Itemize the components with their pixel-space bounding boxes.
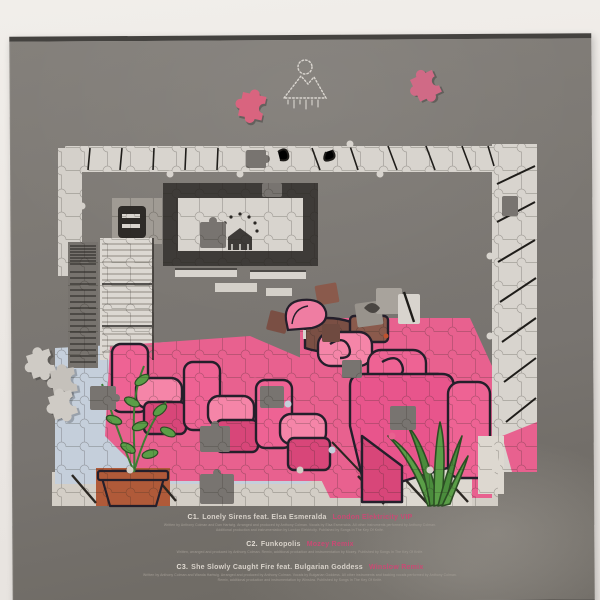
track-remix: Winslow Remix <box>369 564 424 571</box>
track-credits: Written by Anthony Colman and Wanda Hart… <box>0 573 600 577</box>
track-entry-c2: C2.FunkopolisMozey Remix Written, arrang… <box>0 541 600 554</box>
track-title-line: C1.Lonely Sirens feat. Elsa EsmeraldaLon… <box>0 514 600 522</box>
track-position: C3. <box>177 564 189 571</box>
track-position: C1. <box>188 514 200 521</box>
track-title-line: C3.She Slowly Caught Fire feat. Bulgaria… <box>0 564 600 572</box>
track-position: C2. <box>246 541 258 548</box>
track-remix: London Elektricity VIP <box>333 514 413 521</box>
track-credits: Additional production and instrumentatio… <box>0 528 600 532</box>
track-remix: Mozey Remix <box>307 541 354 548</box>
track-credits: Written by Anthony Colman and Dan Hartwi… <box>0 523 600 527</box>
track-title: She Slowly Caught Fire feat. Bulgarian G… <box>191 564 363 571</box>
track-title: Lonely Sirens feat. Elsa Esmeralda <box>202 514 326 521</box>
track-entry-c1: C1.Lonely Sirens feat. Elsa EsmeraldaLon… <box>0 514 600 533</box>
track-credits: Remix, additional production and instrum… <box>0 578 600 582</box>
track-entry-c3: C3.She Slowly Caught Fire feat. Bulgaria… <box>0 564 600 583</box>
photo-backdrop: C1.Lonely Sirens feat. Elsa EsmeraldaLon… <box>0 0 600 600</box>
tracklist: C1.Lonely Sirens feat. Elsa EsmeraldaLon… <box>0 0 600 600</box>
track-title-line: C2.FunkopolisMozey Remix <box>0 541 600 549</box>
track-title: Funkopolis <box>261 541 301 548</box>
track-credits: Written, arranged and produced by Anthon… <box>0 550 600 554</box>
